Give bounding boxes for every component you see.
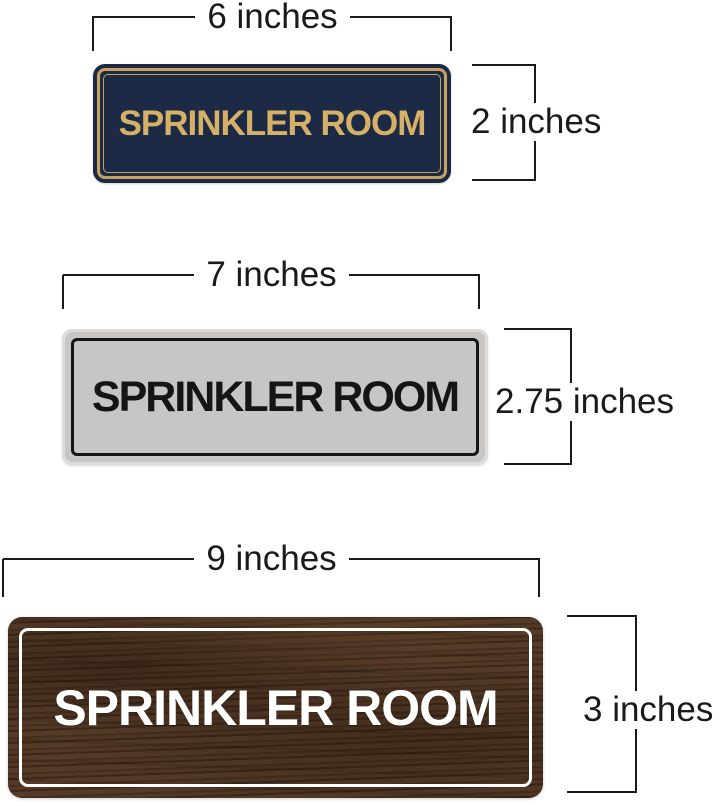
dimension-tick: [567, 791, 637, 793]
height-dimension-label: 3 inches: [583, 691, 717, 729]
dimension-tick: [538, 559, 540, 597]
dimension-tick: [450, 16, 452, 51]
dimension-tick: [504, 328, 572, 330]
height-dimension-label: 2 inches: [471, 103, 605, 141]
dimension-tick: [2, 559, 4, 597]
dimension-tick: [472, 64, 536, 66]
sign-navy-gold: SPRINKLER ROOM: [93, 64, 451, 183]
sign-title: SPRINKLER ROOM: [62, 329, 488, 465]
product-dimension-diagram: 6 inches SPRINKLER ROOM 2 inches 7 inche…: [0, 0, 722, 805]
dimension-tick: [472, 179, 536, 181]
dimension-line: [349, 274, 480, 276]
sign-title: SPRINKLER ROOM: [8, 617, 543, 798]
width-dimension-6in: 6 inches: [93, 0, 452, 34]
width-dimension-label: 6 inches: [195, 0, 349, 34]
sign-silver: SPRINKLER ROOM: [62, 329, 488, 465]
height-dimension-label: 2.75 inches: [495, 383, 678, 421]
dimension-tick: [567, 615, 637, 617]
dimension-tick: [62, 275, 64, 309]
dimension-tick: [92, 16, 94, 51]
width-dimension-7in: 7 inches: [63, 258, 480, 292]
dimension-line: [93, 16, 195, 18]
dimension-tick: [478, 275, 480, 309]
dimension-line: [349, 558, 540, 560]
dimension-tick: [504, 463, 572, 465]
sign-walnut-wood: SPRINKLER ROOM: [8, 617, 543, 798]
dimension-line: [3, 558, 194, 560]
width-dimension-9in: 9 inches: [3, 542, 540, 576]
dimension-line: [63, 274, 194, 276]
dimension-line: [350, 16, 452, 18]
width-dimension-label: 9 inches: [194, 542, 348, 576]
sign-title: SPRINKLER ROOM: [93, 64, 451, 183]
width-dimension-label: 7 inches: [194, 258, 348, 292]
